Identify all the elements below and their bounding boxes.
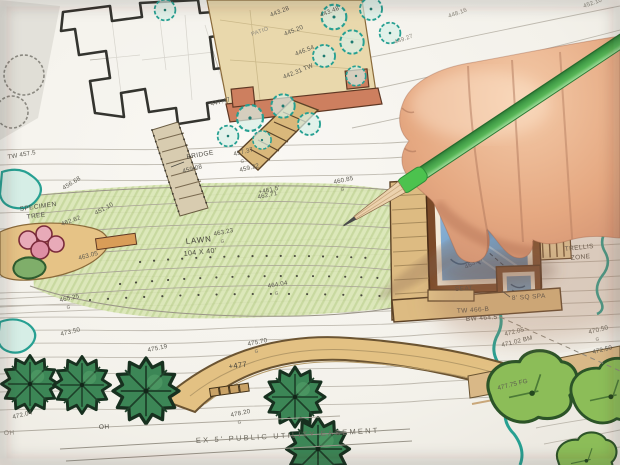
site-plan-photo: SPECIMEN TREE LAWN 104 X 40' BRIDGE PATI… <box>0 0 620 465</box>
oh-marker: OH <box>99 423 110 431</box>
photo-site-plan: SPECIMEN TREE LAWN 104 X 40' BRIDGE PATI… <box>0 0 620 465</box>
